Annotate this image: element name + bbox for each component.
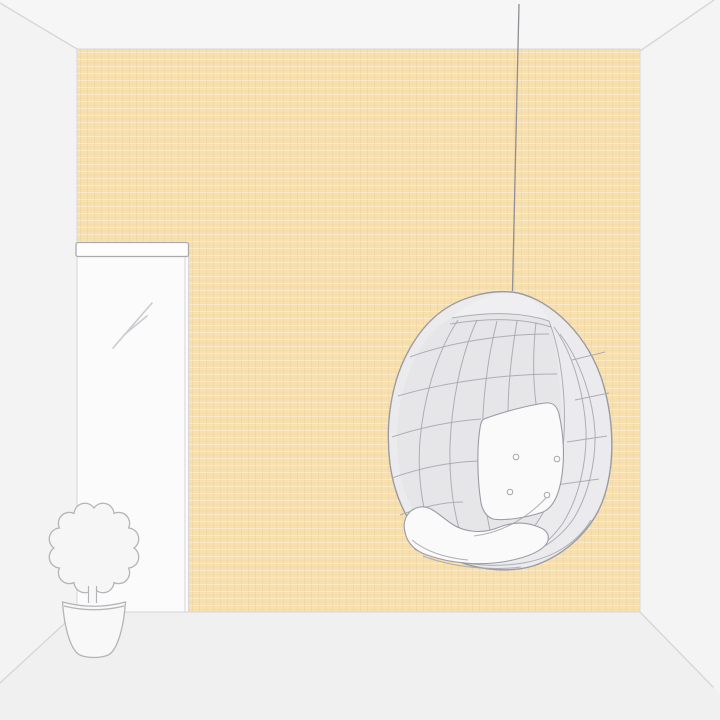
cushion-button	[507, 489, 513, 495]
chair-back-cushion	[478, 403, 564, 520]
mirror-frame-bar	[76, 243, 189, 257]
cushion-button	[544, 492, 550, 498]
plant-trunk	[89, 585, 97, 604]
room-svg	[0, 0, 720, 720]
cushion-button	[554, 456, 560, 462]
cushion-button	[513, 454, 519, 460]
room-illustration	[0, 0, 720, 720]
plant-foliage	[49, 503, 138, 592]
ceiling	[0, 0, 714, 51]
right-wall	[640, 0, 720, 694]
